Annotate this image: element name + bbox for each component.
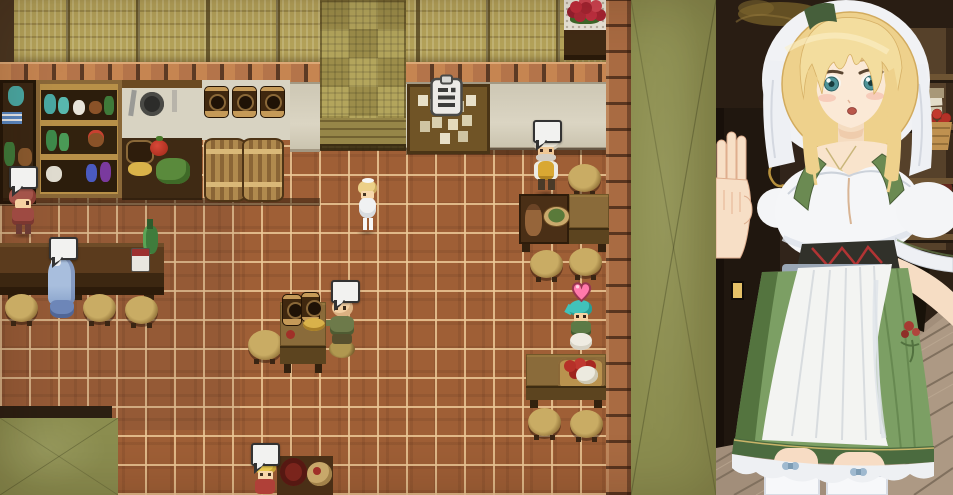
green-bottle xyxy=(4,142,15,166)
speech-bubble xyxy=(9,166,38,189)
kitchen-wall xyxy=(122,80,202,140)
table-front xyxy=(526,386,606,400)
table-leg xyxy=(598,244,606,252)
speech-bubble xyxy=(251,443,280,466)
outside-area-corner xyxy=(0,418,118,495)
wooden-barrel xyxy=(242,138,284,202)
body xyxy=(12,208,34,225)
brown-pot xyxy=(89,101,102,114)
stool xyxy=(528,408,561,436)
stool xyxy=(248,330,283,360)
speech-bubble xyxy=(533,120,562,143)
plaster-strip xyxy=(290,82,320,152)
food-plate xyxy=(303,318,325,331)
sprite-shadow xyxy=(533,190,559,197)
stool xyxy=(530,250,563,278)
bottle-neck xyxy=(147,219,153,229)
body xyxy=(330,316,354,336)
apron-skirt xyxy=(570,333,592,350)
eye xyxy=(26,201,29,205)
heart-icon xyxy=(569,279,594,308)
dark-serving-table xyxy=(519,194,569,244)
eyes xyxy=(576,315,579,318)
rose-leaves xyxy=(570,14,600,24)
brick-column xyxy=(606,0,631,495)
table-leg xyxy=(594,400,602,408)
blush xyxy=(818,94,836,102)
portrait-panel xyxy=(716,0,953,495)
soup-bowl xyxy=(543,206,570,227)
rose-table-front xyxy=(564,30,608,60)
white-figurine xyxy=(73,100,85,115)
teal-vase xyxy=(8,86,24,106)
dress xyxy=(359,198,376,218)
blue-potion xyxy=(86,164,97,182)
wall-edge xyxy=(320,144,406,151)
plank-wall-base xyxy=(320,118,406,146)
rose-bouquet xyxy=(570,1,582,13)
stool xyxy=(5,294,38,322)
teal-jar xyxy=(58,97,69,114)
leg xyxy=(369,218,373,230)
table-keg xyxy=(282,294,302,326)
legs xyxy=(332,334,352,344)
hanging-keg xyxy=(204,86,229,118)
leg xyxy=(16,224,22,234)
apples xyxy=(564,360,576,372)
teal-jar xyxy=(44,94,56,114)
dark-pot xyxy=(126,140,154,164)
maroon-pot xyxy=(280,458,307,486)
wooden-barrel xyxy=(204,138,246,202)
player-barmaid[interactable] xyxy=(352,178,382,236)
leg xyxy=(363,218,367,230)
jug xyxy=(18,148,32,166)
apple xyxy=(286,330,295,339)
wall-corner-post xyxy=(0,0,14,64)
ladle xyxy=(172,90,177,112)
woven-wall-top xyxy=(0,0,608,64)
hanging-pan xyxy=(140,92,164,116)
tomato-leaf xyxy=(156,136,163,141)
bonnet xyxy=(362,178,374,183)
pinned-papers xyxy=(418,95,428,106)
sprite-shadow xyxy=(11,232,35,239)
speech-bubble xyxy=(331,280,360,303)
stool xyxy=(568,164,601,192)
side-table xyxy=(569,194,609,228)
pot-with-fruit xyxy=(88,130,104,147)
speech-bubble xyxy=(49,237,78,260)
table-front xyxy=(280,346,326,364)
rack-bar xyxy=(122,80,202,88)
robe-hem xyxy=(50,300,74,318)
table-leg xyxy=(315,364,322,373)
leg xyxy=(548,179,555,190)
bread-bun xyxy=(576,366,598,384)
spatula xyxy=(128,90,137,116)
fruit xyxy=(313,467,321,475)
leg xyxy=(538,179,545,190)
stool xyxy=(570,410,603,438)
stool xyxy=(569,248,602,276)
table-leg xyxy=(522,244,530,252)
jug xyxy=(525,204,542,236)
vest xyxy=(534,161,558,180)
plate-stack xyxy=(2,112,22,124)
yellow-bowl xyxy=(128,162,152,176)
hanging-keg xyxy=(232,86,257,118)
table-leg xyxy=(284,364,291,373)
outside-area-right xyxy=(631,0,716,495)
stool xyxy=(125,296,158,324)
green-bottle xyxy=(104,96,114,115)
tan-shelf xyxy=(36,80,122,198)
clipboard-icon[interactable] xyxy=(429,74,464,122)
hanging-keg xyxy=(260,86,285,118)
barmaid-portrait xyxy=(716,0,953,495)
greens xyxy=(156,158,190,184)
white-jug xyxy=(46,166,62,182)
arm xyxy=(326,320,334,326)
eye xyxy=(363,193,366,196)
tomato xyxy=(150,140,168,156)
table-front xyxy=(569,228,609,244)
green-vase xyxy=(59,133,69,151)
mug-with-drink xyxy=(131,248,150,272)
sprite-shadow xyxy=(356,230,378,236)
game-viewport[interactable] xyxy=(0,0,716,495)
screenshot-root xyxy=(0,0,953,495)
green-vase xyxy=(46,130,57,151)
keg-wall xyxy=(202,80,290,140)
mouth xyxy=(848,108,857,115)
npc-teal-hair[interactable] xyxy=(564,300,598,358)
produce-counter xyxy=(122,138,202,200)
purple-potion xyxy=(100,162,111,182)
stool xyxy=(83,294,116,322)
lit-window xyxy=(732,282,743,299)
table-leg xyxy=(530,400,538,408)
leg xyxy=(25,224,31,234)
lower-table xyxy=(277,456,333,495)
body xyxy=(255,479,275,494)
